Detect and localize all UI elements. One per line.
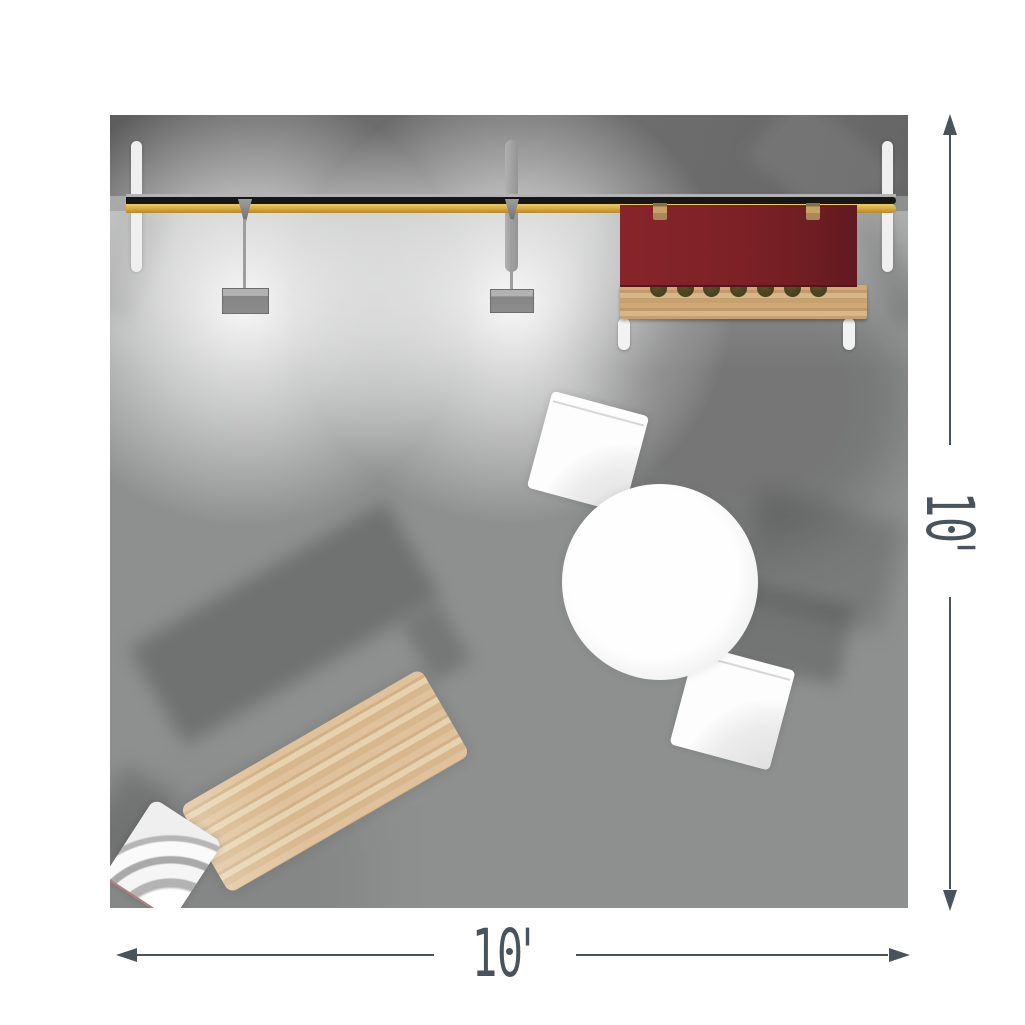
pendant-light-1-stem xyxy=(243,219,246,290)
counter-leg-left xyxy=(618,318,630,350)
height-dimension-label: 10' xyxy=(913,452,985,592)
pendant-light-1-head xyxy=(222,288,269,314)
height-dimension-text: 10' xyxy=(913,492,985,552)
pendant-light-2-stem xyxy=(510,219,513,291)
round-table xyxy=(562,484,758,680)
booth-plan-canvas: 10' 10' xyxy=(0,0,1025,1025)
dimension-line-bottom-right xyxy=(576,954,888,956)
dimension-line-right-top xyxy=(949,133,951,445)
booth-floor xyxy=(110,115,908,908)
arrow-right-icon xyxy=(889,948,910,962)
arrow-up-icon xyxy=(943,114,957,135)
arrow-down-icon xyxy=(943,890,957,911)
counter-hook-right xyxy=(806,203,820,220)
counter-hook-left xyxy=(653,203,667,220)
zero-dot-icon xyxy=(948,526,955,533)
counter-leg-right xyxy=(843,318,855,350)
desk-shadow-spur xyxy=(401,603,472,682)
width-dimension-label: 10' xyxy=(432,918,572,990)
dimension-line-right-bottom xyxy=(949,597,951,889)
zero-dot-icon xyxy=(506,948,513,955)
dimension-line-bottom-left xyxy=(134,954,434,956)
pendant-light-2-head xyxy=(490,289,534,313)
width-dimension-text: 10' xyxy=(472,918,532,990)
